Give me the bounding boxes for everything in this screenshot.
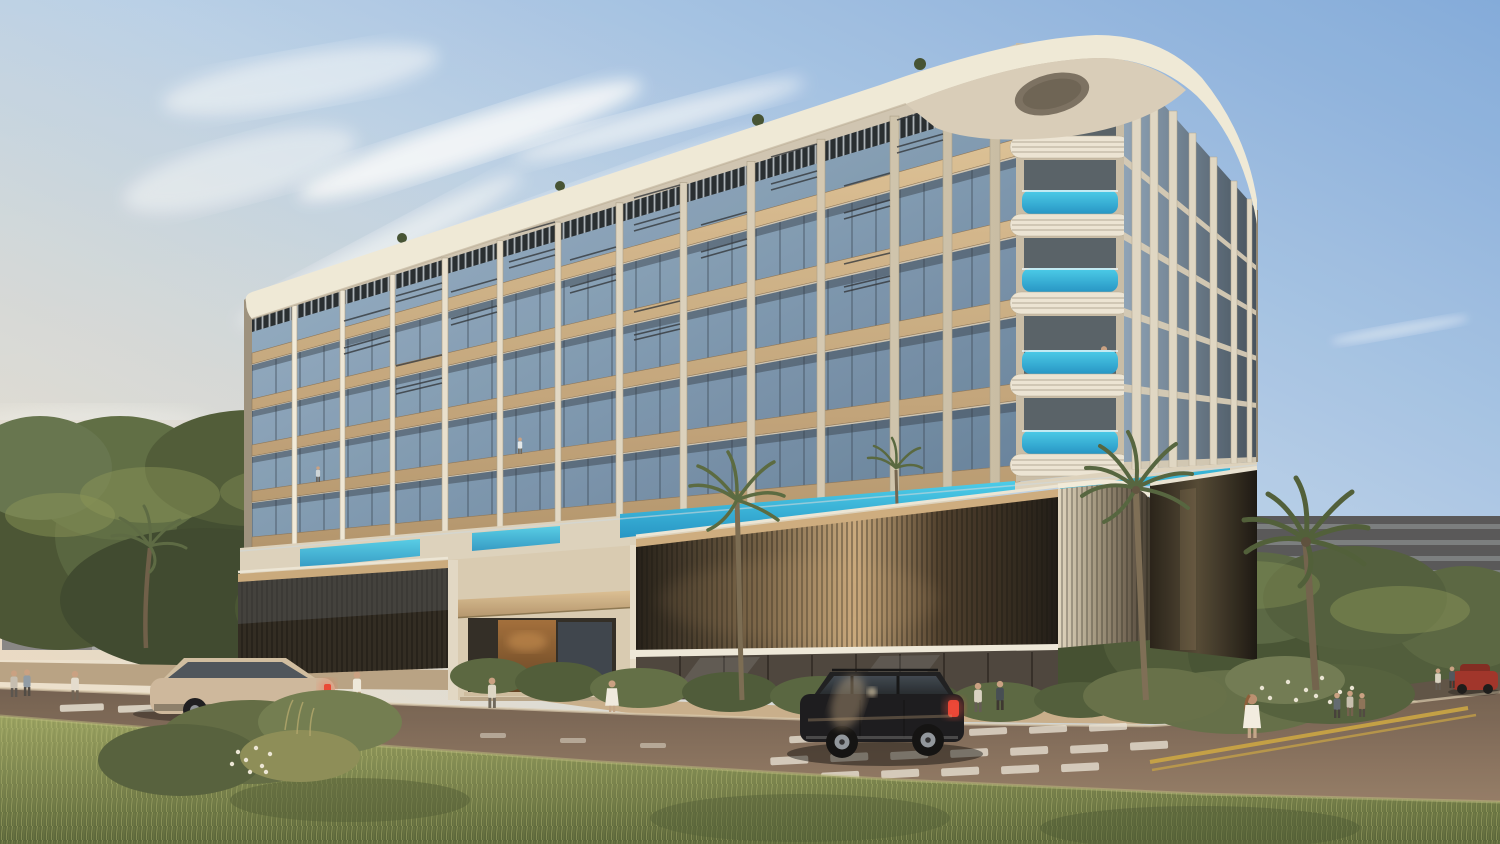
scene-canvas xyxy=(0,0,1500,844)
warm-color-grade xyxy=(0,0,1500,844)
architectural-render xyxy=(0,0,1500,844)
